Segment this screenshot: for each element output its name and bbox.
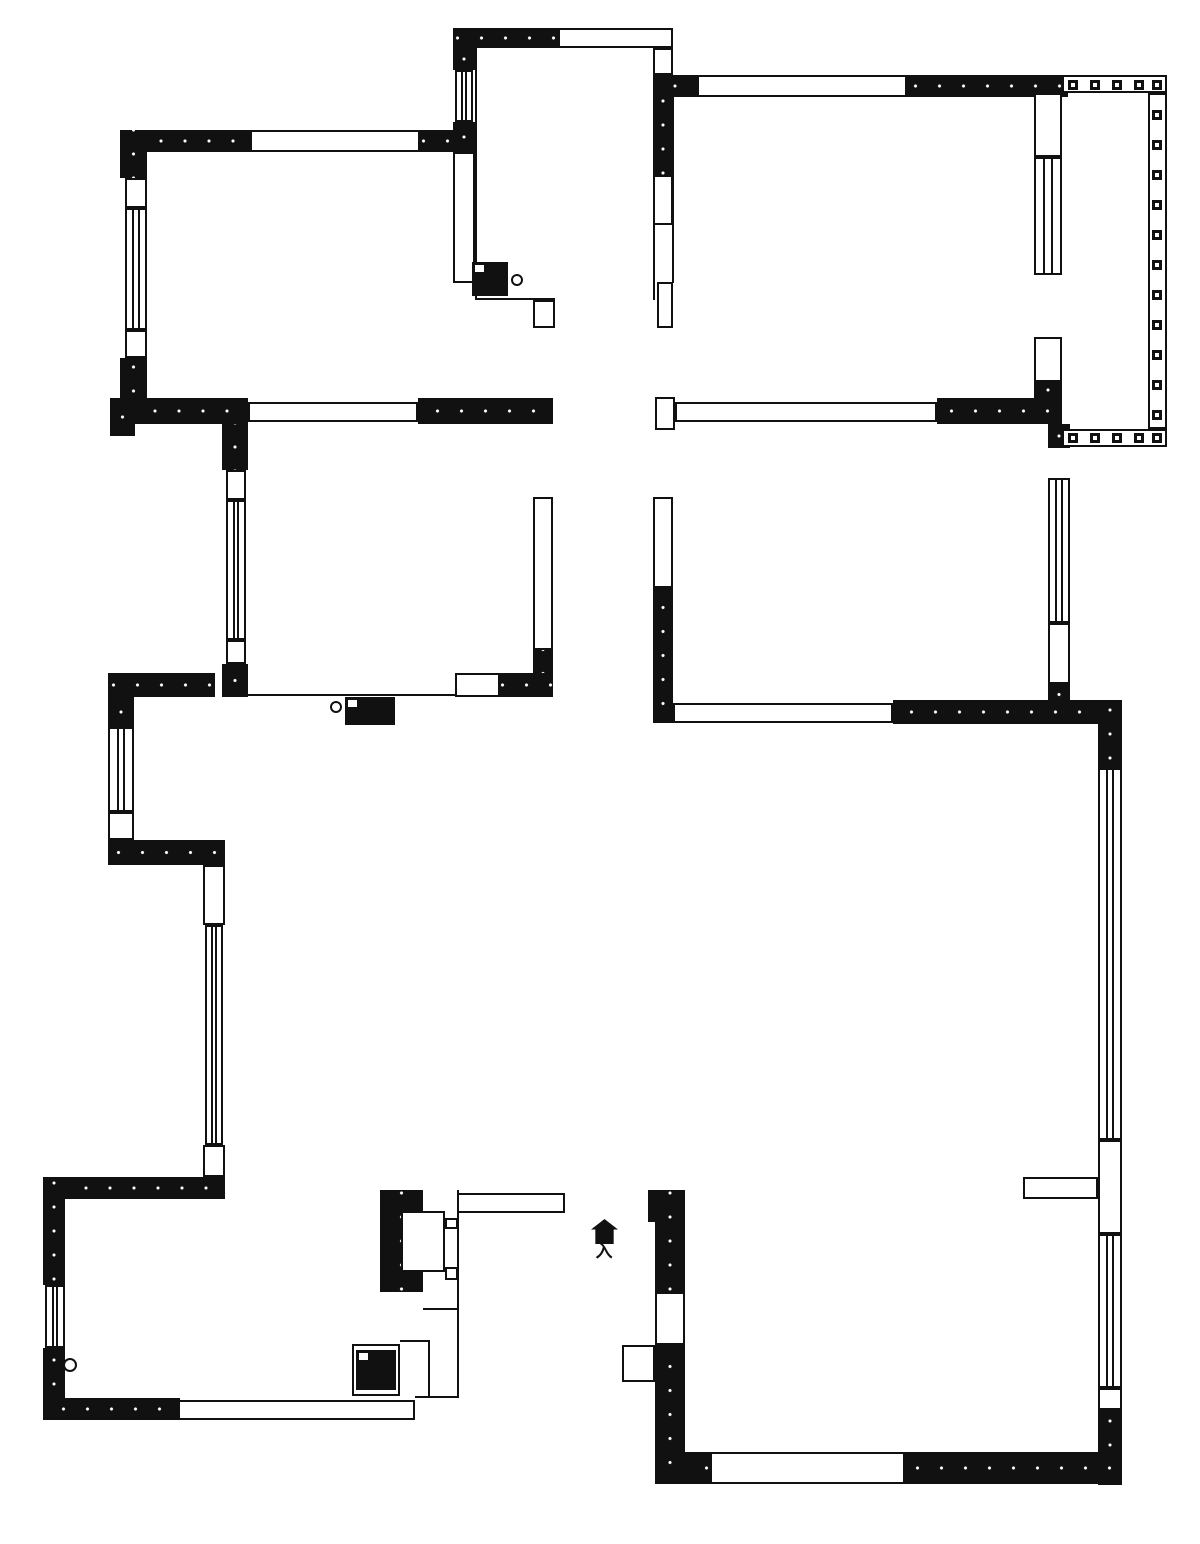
wall-segment	[653, 75, 697, 97]
railing-post	[1152, 410, 1162, 420]
wall-segment	[893, 700, 1122, 724]
partition-segment	[203, 1145, 225, 1177]
partition-segment	[657, 282, 673, 328]
entry-label: 入	[584, 1244, 624, 1261]
wall-segment	[453, 48, 475, 70]
railing-post	[1152, 433, 1162, 443]
window-symbol	[455, 70, 473, 122]
partition-segment	[675, 402, 937, 422]
partition-segment	[1048, 623, 1070, 684]
entry-arrow-icon	[591, 1219, 618, 1244]
railing-post	[1090, 433, 1100, 443]
wall-segment	[108, 697, 134, 727]
partition-segment	[457, 1193, 565, 1213]
wall-segment	[453, 122, 475, 152]
railing-post	[1152, 320, 1162, 330]
partition-segment	[533, 497, 553, 650]
railing-post	[1152, 230, 1162, 240]
partition-segment	[455, 673, 500, 697]
partition-segment	[653, 48, 673, 75]
wall-segment	[1098, 700, 1122, 768]
drain-knob-icon	[63, 1358, 77, 1372]
partition-segment	[1098, 1388, 1122, 1410]
partition-segment	[125, 178, 147, 208]
window-symbol	[1098, 1234, 1122, 1388]
drain-knob-icon	[511, 274, 523, 286]
appliance-notch	[475, 265, 486, 274]
partition-segment	[108, 812, 134, 840]
railing-post	[1152, 290, 1162, 300]
wall-segment	[655, 1190, 685, 1292]
window-symbol	[1048, 478, 1070, 623]
wall-segment	[110, 398, 135, 436]
appliance-icon	[345, 697, 395, 725]
partition-segment	[710, 1452, 905, 1484]
railing-post	[1134, 433, 1144, 443]
wall-segment	[222, 664, 248, 697]
railing-post	[1152, 140, 1162, 150]
drain-knob-icon	[330, 701, 342, 713]
floor-plan: 入 燃气表	[0, 0, 1200, 1544]
wall-segment	[43, 1177, 65, 1285]
partition-segment	[1034, 337, 1062, 382]
partition-segment	[248, 402, 418, 422]
wall-segment	[1034, 382, 1062, 398]
wall-segment	[905, 1452, 1122, 1484]
window-symbol	[205, 925, 223, 1145]
railing-post	[1152, 380, 1162, 390]
window-symbol	[1034, 157, 1062, 275]
partition-segment	[622, 1345, 655, 1382]
partition-segment	[250, 130, 420, 152]
railing-post	[1152, 260, 1162, 270]
wall-line	[415, 1396, 457, 1398]
appliance-icon	[472, 262, 508, 296]
partition-segment	[226, 470, 246, 500]
wall-segment	[120, 130, 147, 178]
partition-segment	[558, 28, 673, 48]
partition-segment	[1034, 93, 1062, 157]
railing-post	[1112, 80, 1122, 90]
wall-segment	[655, 1345, 685, 1484]
railing-post	[1152, 200, 1162, 210]
appliance-notch	[348, 700, 359, 709]
railing-post	[1068, 433, 1078, 443]
railing-post	[1152, 170, 1162, 180]
wall-segment	[108, 673, 215, 697]
wall-line	[428, 1340, 430, 1398]
window-symbol	[1098, 768, 1122, 1140]
wall-line	[248, 694, 455, 696]
wall-line	[457, 1190, 459, 1398]
partition-segment	[1098, 1140, 1122, 1234]
partition-segment	[697, 75, 907, 97]
railing-post	[1152, 350, 1162, 360]
railing-post	[1152, 110, 1162, 120]
wall-segment	[222, 424, 248, 470]
appliance-icon	[356, 1350, 396, 1390]
wall-segment	[418, 398, 553, 424]
wall-segment	[108, 840, 225, 865]
railing-post	[1090, 80, 1100, 90]
window-symbol	[125, 208, 147, 330]
partition-segment	[655, 397, 675, 430]
partition-segment	[203, 865, 225, 925]
partition-segment	[226, 640, 246, 664]
wall-line	[475, 298, 555, 300]
partition-segment	[673, 703, 893, 723]
partition-segment	[178, 1400, 415, 1420]
wall-line	[400, 1340, 428, 1342]
partition-segment	[653, 175, 673, 225]
wall-line	[423, 1308, 457, 1310]
partition-segment	[1023, 1177, 1098, 1199]
wall-segment	[500, 673, 553, 697]
railing-post	[1112, 433, 1122, 443]
wall-segment	[653, 588, 673, 723]
railing-post	[1134, 80, 1144, 90]
partition-segment	[653, 497, 673, 588]
window-symbol	[45, 1285, 65, 1348]
partition-segment	[125, 330, 147, 358]
partition-segment	[401, 1211, 445, 1272]
railing-post	[1152, 80, 1162, 90]
wall-segment	[43, 1398, 180, 1420]
partition-segment	[655, 1292, 685, 1345]
wall-segment	[43, 1177, 225, 1199]
appliance-notch	[359, 1353, 370, 1362]
wall-line	[653, 48, 655, 300]
wall-line	[672, 97, 674, 283]
railing-post	[1068, 80, 1078, 90]
floor-plan-sheet: 入 燃气表	[0, 0, 1200, 1544]
wall-segment	[453, 28, 558, 48]
wall-segment	[937, 398, 1062, 424]
window-symbol	[226, 500, 246, 640]
partition-segment	[533, 300, 555, 328]
window-symbol	[108, 727, 134, 812]
